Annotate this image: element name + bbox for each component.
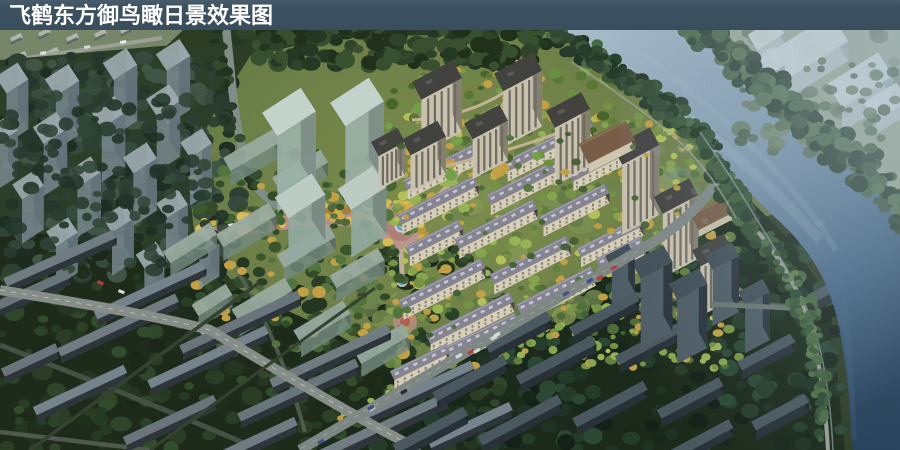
svg-text:飞鹤东方御鸟瞰日景效果图: 飞鹤东方御鸟瞰日景效果图 — [9, 3, 273, 28]
